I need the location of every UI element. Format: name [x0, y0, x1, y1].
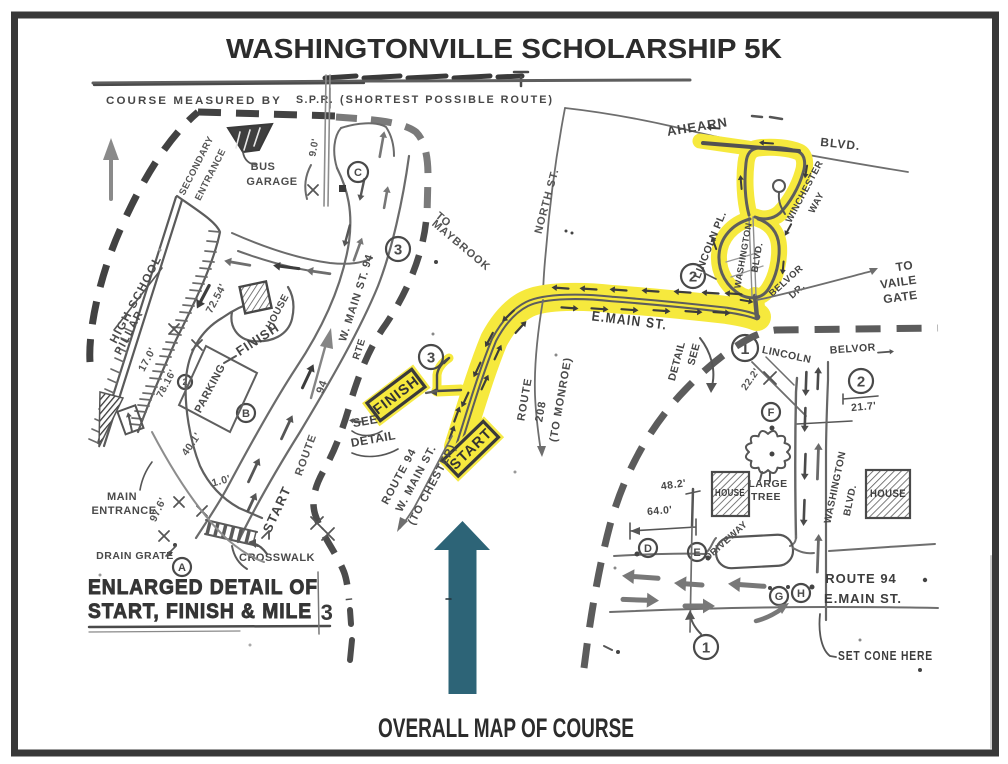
svg-text:E.MAIN ST.: E.MAIN ST.	[824, 591, 902, 606]
svg-text:ENLARGED DETAIL OF: ENLARGED DETAIL OF	[88, 576, 318, 599]
svg-text:HOUSE: HOUSE	[715, 488, 745, 499]
svg-text:C: C	[354, 167, 362, 179]
svg-text:START, FINISH & MILE: START, FINISH & MILE	[88, 600, 312, 623]
svg-text:2: 2	[857, 373, 865, 390]
svg-text:ENTRANCE: ENTRANCE	[91, 505, 156, 517]
svg-text:WASHINGTONVILLE SCHOLARSHIP 5K: WASHINGTONVILLE SCHOLARSHIP 5K	[226, 33, 782, 64]
svg-text:LARGE: LARGE	[748, 478, 787, 490]
svg-text:1: 1	[702, 639, 710, 656]
svg-text:ROUTE 94: ROUTE 94	[825, 571, 897, 586]
svg-text:E: E	[693, 547, 700, 559]
svg-text:COURSE MEASURED BY: COURSE MEASURED BY	[106, 95, 282, 107]
svg-text:F: F	[768, 407, 775, 419]
svg-text:A: A	[178, 562, 186, 574]
svg-text:3: 3	[394, 241, 402, 258]
svg-text:TREE: TREE	[751, 491, 781, 503]
svg-text:TO: TO	[895, 258, 914, 274]
svg-text:DRAIN GRATE: DRAIN GRATE	[96, 550, 174, 562]
svg-text:21.7': 21.7'	[851, 400, 877, 414]
svg-text:BUS: BUS	[251, 161, 276, 173]
svg-text:OVERALL MAP OF COURSE: OVERALL MAP OF COURSE	[378, 713, 634, 743]
svg-text:64.0': 64.0'	[647, 504, 673, 518]
svg-text:G: G	[775, 591, 784, 603]
svg-text:SET CONE HERE: SET CONE HERE	[838, 649, 933, 663]
svg-text:3: 3	[321, 600, 334, 625]
svg-text:S.P.R.: S.P.R.	[296, 94, 334, 106]
svg-text:D: D	[644, 543, 652, 555]
svg-text:3: 3	[427, 349, 435, 366]
svg-text:GARAGE: GARAGE	[246, 176, 297, 188]
svg-text:(SHORTEST POSSIBLE ROUTE): (SHORTEST POSSIBLE ROUTE)	[340, 94, 554, 106]
svg-text:H: H	[797, 588, 805, 600]
svg-text:B: B	[242, 408, 250, 420]
svg-text:MAIN: MAIN	[107, 491, 137, 503]
svg-text:HOUSE: HOUSE	[870, 488, 906, 500]
svg-text:CROSSWALK: CROSSWALK	[239, 552, 315, 564]
